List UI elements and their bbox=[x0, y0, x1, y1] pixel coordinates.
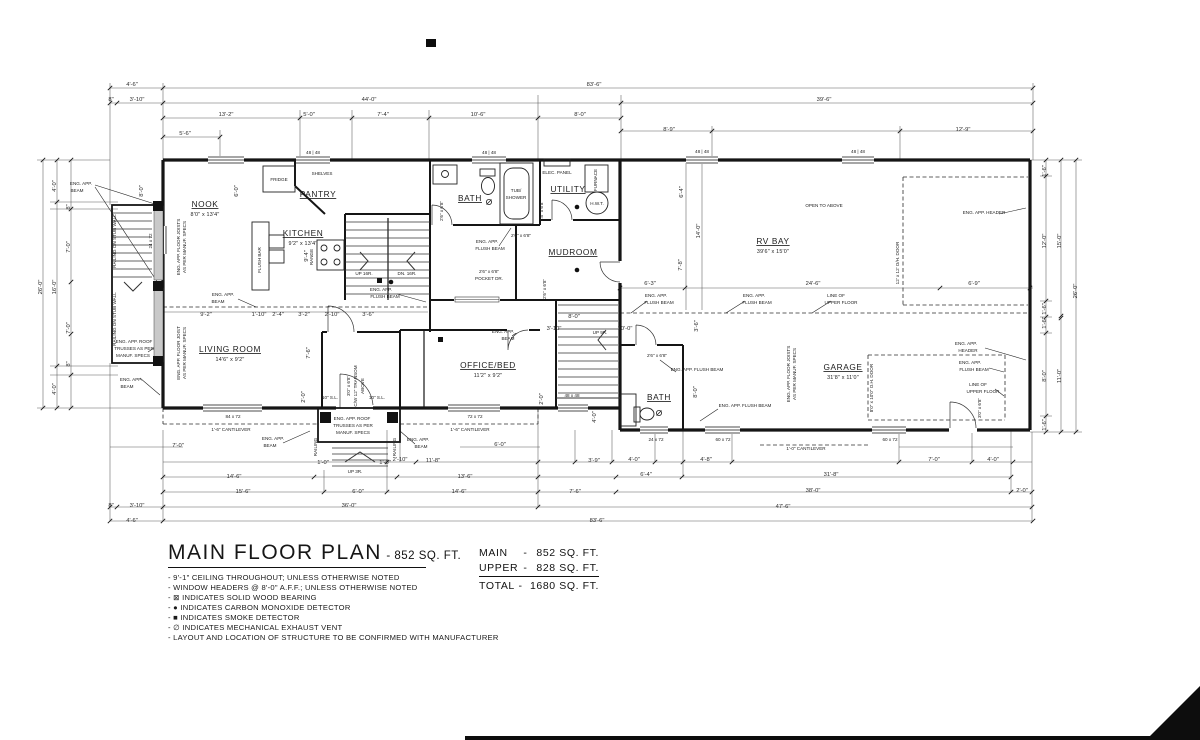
dimension-lines bbox=[37, 83, 1082, 521]
dimension-label: 15'-6" bbox=[236, 489, 251, 495]
annotation-label: 48 x 48 bbox=[564, 393, 580, 398]
dimension-label: 7'-6" bbox=[569, 489, 581, 495]
dimension-label: 5'-0" bbox=[303, 112, 315, 118]
annotation-label: 60 x 72 bbox=[715, 437, 731, 442]
smoke-detector-icon bbox=[438, 337, 443, 342]
dimension-label: 4'-0" bbox=[52, 383, 58, 395]
tub-icon bbox=[500, 163, 533, 224]
room-label: RV BAY bbox=[756, 236, 789, 246]
annotation-label: ENG. APP. bbox=[743, 293, 765, 298]
annotation-label: BEAM bbox=[263, 443, 276, 448]
dimension-label: 9'-2" bbox=[200, 312, 212, 318]
sheet-corner-fold bbox=[1146, 686, 1200, 740]
sheet-top-mark bbox=[426, 39, 436, 47]
annotation-label: RAILING bbox=[313, 437, 318, 456]
sink-icon bbox=[269, 235, 284, 263]
annotation-label: FLUSH BAR bbox=[257, 246, 262, 272]
plan-title-row: MAIN FLOOR PLAN - 852 SQ. FT. bbox=[168, 541, 426, 568]
annotation-label: C/W 12" TRANSOM bbox=[353, 365, 358, 406]
dimension-label: 12'-9" bbox=[956, 127, 971, 133]
room-label: NOOK bbox=[192, 199, 219, 209]
annotation-label: DN. 16R. bbox=[398, 271, 417, 276]
bath-sink-icon bbox=[433, 165, 457, 184]
annotation-label: H.W.T. bbox=[590, 201, 604, 206]
floor-plan-sheet: NOOK8'0" x 13'4"KITCHEN9'2" x 13'4"PANTR… bbox=[0, 0, 1200, 740]
area-row-main: MAIN - 852 SQ. FT. bbox=[479, 546, 599, 561]
dimension-label: 14'-0" bbox=[696, 224, 702, 239]
dimension-label: 6'-0" bbox=[234, 185, 240, 197]
note-item: - ⊠ INDICATES SOLID WOOD BEARING bbox=[168, 593, 468, 603]
dimension-label: 7'-0" bbox=[172, 443, 184, 449]
room-label: MUDROOM bbox=[549, 247, 598, 257]
dashed-lines bbox=[163, 177, 1030, 445]
dimension-label: 3'-10" bbox=[547, 326, 562, 332]
annotation-label: OPEN TO ABOVE bbox=[805, 203, 842, 208]
annotation-label: ENG. APP. bbox=[407, 437, 429, 442]
dimension-label: 31'-8" bbox=[824, 472, 839, 478]
annotation-label: 12' x 12' O/H. DOOR bbox=[895, 241, 900, 284]
dimension-label: 6'-0" bbox=[494, 442, 506, 448]
dimension-label: 13'-2" bbox=[219, 112, 234, 118]
dimension-label: 3'-10" bbox=[130, 97, 145, 103]
dimension-label: 5'-6" bbox=[179, 131, 191, 137]
annotation-label: 2'8" x 6'8" bbox=[539, 201, 544, 221]
dimension-label: 4'-6" bbox=[126, 82, 138, 88]
annotation-label: 48 | 48 bbox=[482, 150, 496, 155]
annotation-label: FLUSH BEAM bbox=[742, 300, 772, 305]
dimension-label: 7'-6" bbox=[306, 347, 312, 359]
room-size-label: 8'0" x 13'4" bbox=[191, 212, 220, 218]
dimension-label: 7'-0" bbox=[66, 322, 72, 334]
dimension-label: 1'-0" bbox=[379, 460, 391, 466]
annotation-label: ENG. APP. ROOF bbox=[334, 416, 371, 421]
room-size-label: 14'6" x 9'2" bbox=[216, 357, 245, 363]
dimension-label: 44'-0" bbox=[362, 97, 377, 103]
annotation-label: 48 | 48 bbox=[851, 149, 865, 154]
annotation-label: BEAM bbox=[120, 384, 133, 389]
annotation-label: 24 x 72 bbox=[648, 437, 664, 442]
dimension-label: 11'-0" bbox=[1057, 369, 1063, 383]
room-size-label: 39'6" x 15'0" bbox=[757, 249, 789, 255]
dimension-label: 83'-6" bbox=[590, 518, 605, 524]
annotation-label: ENG. APP. FLOOR JOISTS bbox=[176, 219, 181, 276]
annotation-label: UPPER FLOOR bbox=[967, 389, 1001, 394]
annotation-label: 10" S.L. bbox=[369, 395, 385, 400]
dimension-label: 26'-0" bbox=[1073, 284, 1079, 299]
annotation-label: MANUF. SPECS bbox=[336, 430, 370, 435]
dimension-label: 6'-4" bbox=[679, 186, 685, 198]
room-size-label: 31'8" x 11'0" bbox=[827, 375, 859, 381]
dimension-label: 1'-0" bbox=[317, 460, 329, 466]
note-item: - ∅ INDICATES MECHANICAL EXHAUST VENT bbox=[168, 623, 468, 633]
annotation-label: UP 3R. bbox=[348, 469, 363, 474]
annotation-label: 2'6" x 6'8" bbox=[647, 353, 667, 358]
annotation-label: FLUSH BEAM bbox=[644, 300, 674, 305]
note-item: - ■ INDICATES SMOKE DETECTOR bbox=[168, 613, 468, 623]
annotation-label: ENG. APP. bbox=[492, 329, 514, 334]
room-label: OFFICE/BED bbox=[460, 360, 516, 370]
smoke-detector-icon bbox=[377, 278, 382, 283]
annotation-label: 48 | 48 bbox=[695, 149, 709, 154]
dimension-label: 14'-6" bbox=[452, 489, 467, 495]
annotation-label: 24 x 72 bbox=[148, 233, 153, 249]
dimension-label: 7'-4" bbox=[377, 112, 389, 118]
annotation-label: BEAM bbox=[501, 336, 514, 341]
tick-path bbox=[41, 86, 1078, 523]
annotation-label: ENG. APP. bbox=[645, 293, 667, 298]
dimension-label: 12'-0" bbox=[1042, 234, 1048, 249]
dimension-label: 6'-9" bbox=[968, 281, 980, 287]
annotation-label: AS PER MANUF. SPECS bbox=[182, 327, 187, 379]
dimension-label: 3'-9" bbox=[588, 458, 600, 464]
dimension-label: 8'-0" bbox=[1042, 370, 1048, 382]
dimension-label: 2'-0" bbox=[301, 391, 307, 403]
annotation-label: ENG. APP. HEADER bbox=[963, 210, 1006, 215]
annotation-label: AS PER MANUF. SPECS bbox=[182, 221, 187, 273]
dimension-label: 3'-6" bbox=[362, 312, 374, 318]
title-block: MAIN FLOOR PLAN - 852 SQ. FT. - 9'-1" CE… bbox=[168, 541, 468, 643]
annotation-label: 72 x 72 bbox=[467, 414, 483, 419]
dimension-label: 1'-6" bbox=[1042, 317, 1048, 329]
room-label: KITCHEN bbox=[283, 228, 324, 238]
annotation-label: AS PER MANUF. SPECS bbox=[792, 348, 797, 400]
annotation-label: FLUSH BEAM bbox=[370, 294, 400, 299]
annotation-label: UP 9R. bbox=[593, 330, 608, 335]
dimension-label: 8'-0" bbox=[139, 185, 145, 197]
annotation-label: FLUSH BEAM bbox=[475, 246, 505, 251]
dimension-label: 1'-6" bbox=[1042, 165, 1048, 177]
dimension-label: 38'-0" bbox=[806, 488, 821, 494]
annotation-label: TRUSSES AS PER bbox=[114, 346, 154, 351]
dimension-label: 3'-6" bbox=[694, 320, 700, 332]
area-table: MAIN - 852 SQ. FT. UPPER - 828 SQ. FT. T… bbox=[479, 546, 599, 594]
annotation-label: ENG. APP. bbox=[70, 181, 92, 186]
fixtures bbox=[252, 159, 654, 426]
area-row-total: TOTAL - 1680 SQ. FT. bbox=[479, 579, 599, 594]
dimension-label: 2'-4" bbox=[272, 312, 284, 318]
dimension-label: 24'-6" bbox=[806, 281, 821, 287]
room-size-label: 9'2" x 13'4" bbox=[289, 241, 318, 247]
dimension-label: 8" bbox=[108, 97, 113, 103]
general-notes: - 9'-1" CEILING THROUGHOUT; UNLESS OTHER… bbox=[168, 573, 468, 643]
dimension-label: 4'-6" bbox=[126, 518, 138, 524]
room-label: PANTRY bbox=[300, 189, 337, 199]
annotation-label: ENG. APP. bbox=[212, 292, 234, 297]
dimension-label: 4'-0" bbox=[987, 457, 999, 463]
plan-title-area: - 852 SQ. FT. bbox=[386, 550, 461, 562]
annotation-label: 48 | 48 bbox=[306, 150, 320, 155]
dimension-label: 6'-4" bbox=[640, 472, 652, 478]
annotation-label: ENG. APP. bbox=[370, 287, 392, 292]
annotation-label: 2'6" x 6'8" bbox=[542, 279, 547, 299]
annotation-label: ELEC. PANEL bbox=[542, 170, 572, 175]
dimension-label: 36'-0" bbox=[342, 503, 357, 509]
dimension-label: 9'-4" bbox=[304, 250, 310, 262]
note-item: - 9'-1" CEILING THROUGHOUT; UNLESS OTHER… bbox=[168, 573, 468, 583]
annotation-label: 2'6" x 6'8" bbox=[479, 269, 499, 274]
co-detector-icon bbox=[575, 268, 580, 273]
toilet-icon bbox=[480, 169, 495, 195]
dimension-label: 2'-10" bbox=[325, 312, 340, 318]
annotation-label: FRIDGE bbox=[270, 177, 287, 182]
annotation-label: 3'0" x 6'8" bbox=[977, 398, 982, 418]
room-label: UTILITY bbox=[550, 184, 585, 194]
annotation-label: BEAM bbox=[211, 299, 224, 304]
annotation-label: BEAM bbox=[414, 444, 427, 449]
annotation-label: ENG. APP. ROOF bbox=[116, 339, 153, 344]
annotation-label: 1'-6" CANTILEVER bbox=[211, 427, 251, 432]
annotation-label: ENG. APP. FLUSH BEAM bbox=[719, 403, 772, 408]
annotation-label: BEAM bbox=[70, 188, 83, 193]
dimension-label: 11'-8" bbox=[426, 458, 440, 464]
room-size-label: 11'2" x 9'2" bbox=[474, 373, 503, 379]
dimension-label: 7'-0" bbox=[928, 457, 940, 463]
annotation-label: RAILING ON STUB WALL bbox=[112, 292, 117, 346]
dimension-label: 7'-0" bbox=[66, 241, 72, 253]
annotation-label: 1'-0" CANTILEVER bbox=[786, 446, 826, 451]
dimension-label: 4'-0" bbox=[628, 457, 640, 463]
area-row-upper: UPPER - 828 SQ. FT. bbox=[479, 561, 599, 577]
annotation-label: ENG. APP. FLOOR JOIST bbox=[176, 326, 181, 380]
dimension-label: 10'-6" bbox=[471, 112, 486, 118]
annotation-label: FLUSH BEAM bbox=[959, 367, 989, 372]
note-item: - LAYOUT AND LOCATION OF STRUCTURE TO BE… bbox=[168, 633, 468, 643]
dimension-label: 1'-6" bbox=[1042, 303, 1048, 315]
annotation-label: SHOWER bbox=[506, 195, 527, 200]
room-label: GARAGE bbox=[823, 362, 862, 372]
dimension-label: 8'-0" bbox=[693, 386, 699, 398]
sheet-marks bbox=[426, 39, 1200, 740]
annotation-label: 2'6" x 6'8" bbox=[511, 233, 531, 238]
annotation-label: ABOVE bbox=[360, 378, 365, 394]
annotation-label: MANUF. SPECS bbox=[116, 353, 150, 358]
exhaust-vent-icon bbox=[486, 199, 661, 415]
note-item: - ● INDICATES CARBON MONOXIDE DETECTOR bbox=[168, 603, 468, 613]
dimension-label: 26'-0" bbox=[38, 280, 44, 295]
room-label: LIVING ROOM bbox=[199, 344, 261, 354]
annotation-label: ENG. APP. bbox=[120, 377, 142, 382]
annotation-label: RAILING ON STUB WALL bbox=[112, 214, 117, 268]
annotation-label: ENG. APP. bbox=[262, 436, 284, 441]
note-item: - WINDOW HEADERS @ 8'-0" A.F.F.; UNLESS … bbox=[168, 583, 468, 593]
annotation-label: LINE OF bbox=[827, 293, 845, 298]
annotation-label: POCKET DR. bbox=[475, 276, 503, 281]
dimension-label: 83'-6" bbox=[587, 82, 602, 88]
annotation-label: HEADER bbox=[958, 348, 978, 353]
dimension-label: 16'-0" bbox=[52, 280, 58, 295]
annotation-label: 3'0" x 6'8" bbox=[346, 376, 351, 396]
dimension-label: 7'-8" bbox=[678, 259, 684, 271]
dimension-label: 10'-0" bbox=[618, 326, 633, 332]
annotation-label: 8'0" x 10'0" O.H. DOOR bbox=[869, 363, 874, 412]
annotation-label: ENG. APP. bbox=[955, 341, 977, 346]
dimension-label: 6'-3" bbox=[644, 281, 656, 287]
annotation-label: ENG. APP. bbox=[959, 360, 981, 365]
annotation-label: SHELVES bbox=[312, 171, 333, 176]
dimension-label: 47'-6" bbox=[776, 504, 791, 510]
sheet-bottom-edge bbox=[465, 736, 1200, 740]
room-label: BATH bbox=[458, 193, 482, 203]
dimension-label: 8" bbox=[66, 361, 72, 366]
annotation-label: 60 x 72 bbox=[882, 437, 898, 442]
dimension-label: 2'-0" bbox=[1016, 488, 1028, 494]
annotation-label: 2'6" x 6'8" bbox=[439, 201, 444, 221]
dimension-label: 4'-0" bbox=[52, 180, 58, 192]
toilet-icon bbox=[634, 407, 654, 422]
annotation-label: TUB/ bbox=[511, 188, 522, 193]
dimension-label: 8'-0" bbox=[574, 112, 586, 118]
dimension-label: 8" bbox=[108, 503, 113, 509]
dimension-label: 2'-0" bbox=[539, 393, 545, 405]
annotation-label: 84 x 72 bbox=[225, 414, 241, 419]
co-detector-icon bbox=[575, 205, 580, 210]
room-label: BATH bbox=[647, 392, 671, 402]
annotation-label: 10" S.L. bbox=[322, 395, 338, 400]
dimension-label: 8'-0" bbox=[568, 314, 580, 320]
annotation-label: ENG. APP. bbox=[476, 239, 498, 244]
tick-marks bbox=[41, 86, 1078, 523]
dimension-label: 39'-6" bbox=[817, 97, 832, 103]
dimension-label: 4'-0" bbox=[592, 411, 598, 423]
dimension-label: 3'-2" bbox=[298, 312, 310, 318]
annotation-label: FURNACE bbox=[593, 169, 598, 191]
dimension-label: 3'-10" bbox=[130, 503, 145, 509]
annotation-label: RAILING bbox=[392, 437, 397, 456]
dimension-label: 13'-6" bbox=[458, 474, 473, 480]
dimension-label: 1'-6" bbox=[1042, 419, 1048, 431]
dimension-label: 14'-6" bbox=[227, 474, 242, 480]
annotation-label: ENG. APP. FLUSH BEAM bbox=[671, 367, 724, 372]
dimension-label: 8" bbox=[66, 204, 72, 209]
dimension-label: 4'-8" bbox=[700, 457, 712, 463]
range-icon bbox=[317, 240, 344, 270]
annotation-label: LINE OF bbox=[969, 382, 987, 387]
co-detector-icon bbox=[389, 280, 394, 285]
annotation-label: ENG. APP. FLOOR JOISTS bbox=[786, 346, 791, 403]
annotation-label: TRUSSES AS PER bbox=[333, 423, 373, 428]
annotation-label: UP 16R. bbox=[355, 271, 372, 276]
annotation-label: 1'-6" CANTILEVER bbox=[450, 427, 490, 432]
plan-title: MAIN FLOOR PLAN bbox=[168, 541, 382, 564]
dimension-label: 15'-0" bbox=[1057, 234, 1063, 249]
dimension-label: 6'-0" bbox=[352, 489, 364, 495]
dimension-label: 2'-10" bbox=[393, 457, 408, 463]
dimension-label: 8'-9" bbox=[663, 127, 675, 133]
stairs-center bbox=[556, 305, 620, 398]
annotation-label: UPPER FLOOR bbox=[825, 300, 859, 305]
dimension-label: 1'-10" bbox=[252, 312, 267, 318]
